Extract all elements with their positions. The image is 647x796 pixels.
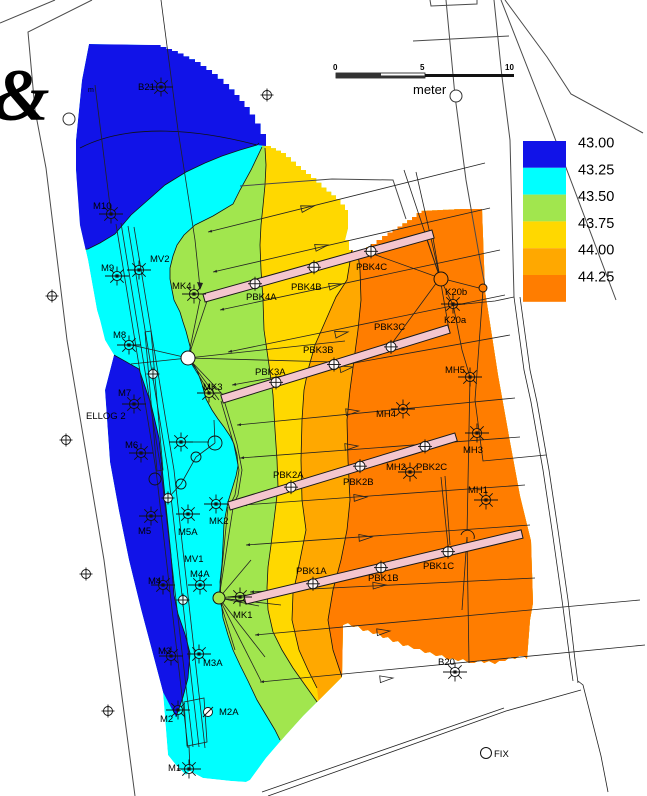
svg-text:MV2: MV2	[150, 254, 170, 265]
svg-text:&: &	[0, 55, 50, 137]
svg-text:PBK2B: PBK2B	[343, 477, 374, 488]
svg-text:MH1: MH1	[468, 485, 488, 496]
svg-text:M2A: M2A	[219, 707, 239, 718]
svg-text:10: 10	[505, 63, 514, 72]
svg-text:44.25: 44.25	[578, 270, 614, 286]
svg-text:K20a: K20a	[444, 315, 467, 326]
svg-text:PBK4B: PBK4B	[291, 282, 322, 293]
svg-text:MH4: MH4	[376, 409, 396, 420]
svg-text:m: m	[88, 87, 94, 94]
svg-text:PBK1B: PBK1B	[368, 573, 399, 584]
svg-text:PBK4C: PBK4C	[356, 262, 387, 273]
svg-text:M10: M10	[93, 201, 111, 212]
svg-text:FIX: FIX	[494, 749, 509, 760]
svg-text:meter: meter	[413, 82, 447, 97]
svg-text:PBK3A: PBK3A	[255, 367, 286, 378]
svg-text:M1: M1	[168, 763, 181, 774]
svg-text:PBK2C: PBK2C	[416, 462, 447, 473]
svg-text:MV1: MV1	[184, 554, 204, 565]
svg-text:B21: B21	[138, 82, 155, 93]
svg-text:M9: M9	[101, 263, 114, 274]
svg-text:M8: M8	[113, 330, 126, 341]
svg-text:MK4: MK4	[172, 281, 192, 292]
svg-text:ELLOG 2: ELLOG 2	[86, 411, 126, 422]
svg-text:M5A: M5A	[178, 527, 198, 538]
svg-text:B20: B20	[438, 657, 455, 668]
svg-text:MH5: MH5	[445, 365, 465, 376]
svg-text:M7: M7	[118, 388, 131, 399]
svg-text:M3A: M3A	[203, 658, 223, 669]
svg-text:MH2: MH2	[386, 462, 406, 473]
svg-text:0: 0	[333, 63, 338, 72]
svg-text:M5: M5	[138, 526, 151, 537]
svg-text:M4A: M4A	[190, 569, 210, 580]
svg-text:M3: M3	[158, 646, 171, 657]
svg-text:5: 5	[420, 63, 425, 72]
svg-text:43.50: 43.50	[578, 189, 614, 205]
svg-text:MK3: MK3	[203, 382, 223, 393]
svg-text:MH3: MH3	[463, 445, 483, 456]
svg-text:M2: M2	[160, 714, 173, 725]
svg-text:43.00: 43.00	[578, 136, 614, 152]
svg-text:PBK1C: PBK1C	[423, 561, 454, 572]
svg-text:44.00: 44.00	[578, 243, 614, 259]
svg-text:PBK1A: PBK1A	[296, 566, 327, 577]
svg-text:PBK4A: PBK4A	[246, 292, 277, 303]
svg-text:MK1: MK1	[233, 610, 253, 621]
svg-text:43.75: 43.75	[578, 216, 614, 232]
svg-text:K20b: K20b	[445, 287, 467, 298]
svg-text:PBK3C: PBK3C	[374, 322, 405, 333]
svg-text:43.25: 43.25	[578, 162, 614, 178]
svg-text:PBK3B: PBK3B	[303, 345, 334, 356]
svg-text:M6: M6	[125, 440, 138, 451]
svg-text:PBK2A: PBK2A	[273, 470, 304, 481]
svg-text:M4: M4	[148, 576, 161, 587]
svg-text:MK2: MK2	[209, 516, 229, 527]
